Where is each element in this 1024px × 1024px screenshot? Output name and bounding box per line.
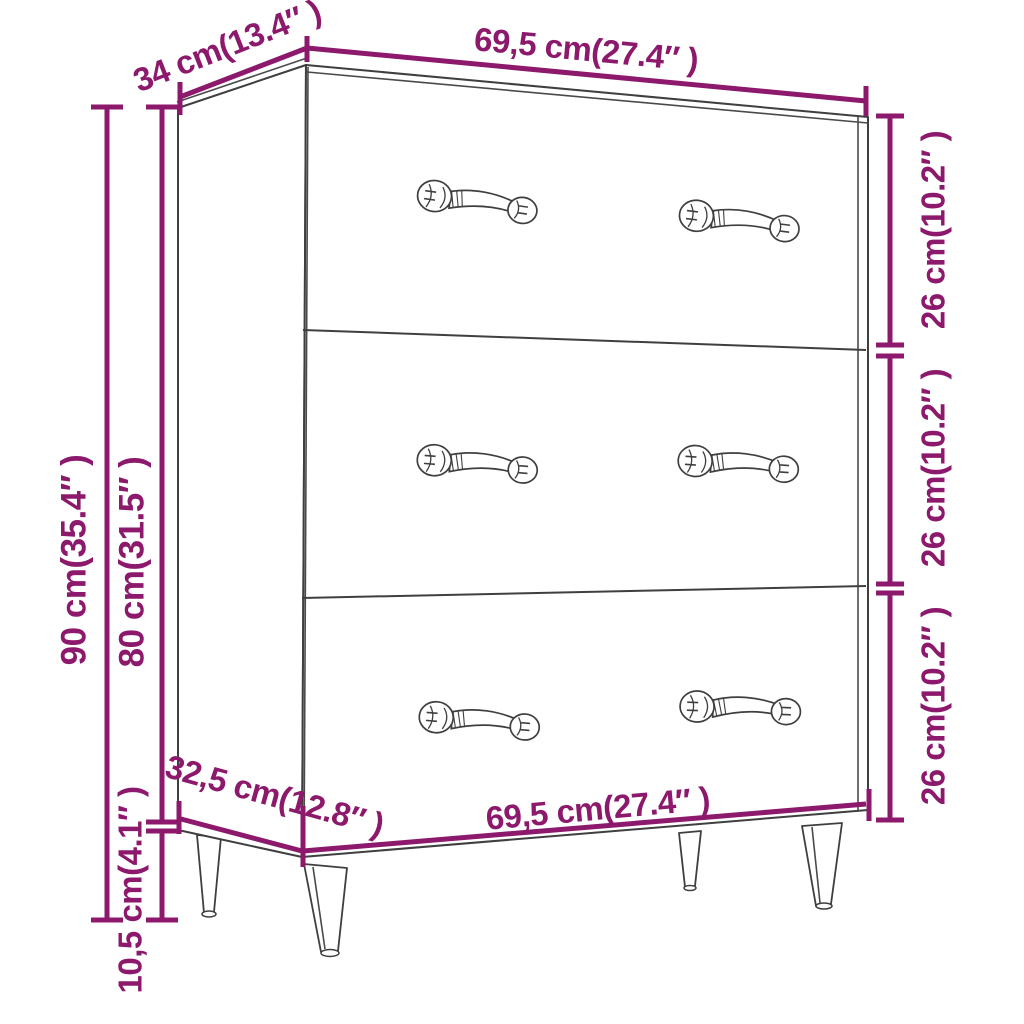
dim-leg-height [146, 831, 178, 920]
leg-back-left [197, 835, 221, 913]
leg-front-right [802, 823, 842, 906]
leg-front-left [304, 864, 347, 952]
cabinet-side-panel [178, 65, 306, 857]
dim-drawer-top-height [876, 116, 904, 345]
label-leg-height: 10,5 cm(4.1″ ) [112, 787, 149, 994]
label-overall-height: 90 cm(35.4″ ) [54, 455, 93, 666]
dim-drawer-bottom-height [876, 593, 904, 820]
label-top-width: 69,5 cm(27.4″ ) [473, 20, 700, 78]
leg-back-left-foot [202, 911, 216, 917]
label-drawer-top-height: 26 cm(10.2″ ) [915, 131, 952, 329]
leg-back-right-foot [684, 886, 696, 891]
label-drawer-bottom-height: 26 cm(10.2″ ) [915, 607, 952, 805]
leg-front-right-foot [816, 903, 832, 909]
sideboard-dimension-diagram: 34 cm(13.4″ ) 69,5 cm(27.4″ ) 90 cm(35.4… [0, 0, 1024, 1024]
dimension-diagram-page: 34 cm(13.4″ ) 69,5 cm(27.4″ ) 90 cm(35.4… [0, 0, 1024, 1024]
leg-back-right [679, 831, 701, 887]
label-drawer-middle-height: 26 cm(10.2″ ) [915, 369, 952, 567]
dim-drawer-middle-height [876, 356, 904, 584]
label-body-height: 80 cm(31.5″ ) [112, 457, 151, 668]
leg-front-left-foot [321, 950, 339, 957]
